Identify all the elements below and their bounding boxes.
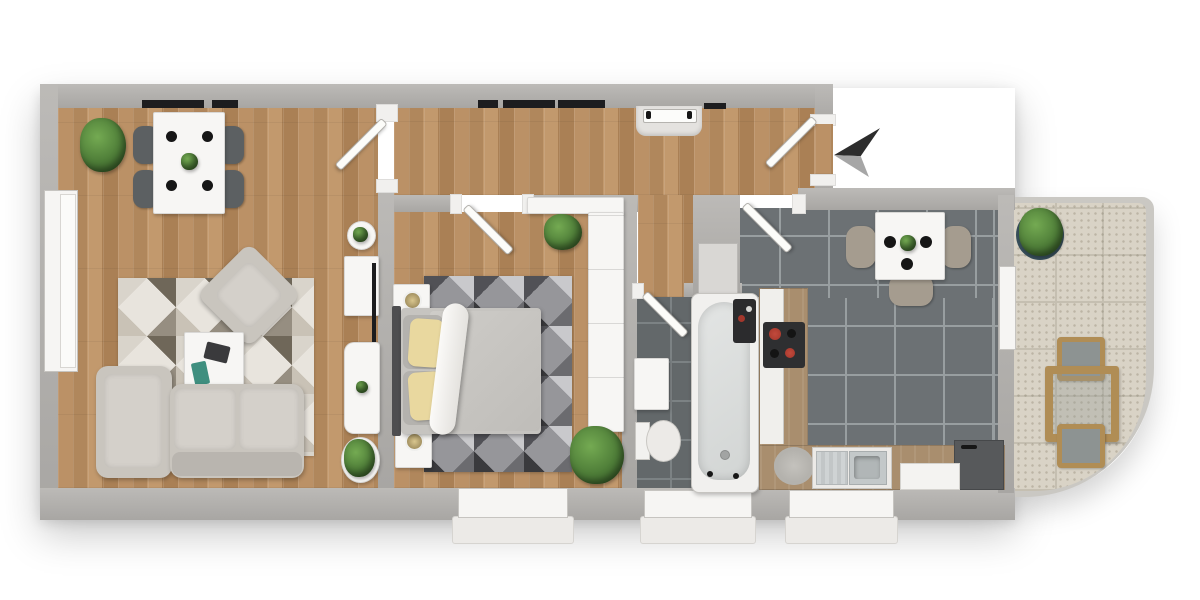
bathroom-south-window [644,490,752,518]
kitchen-window-sill [785,516,898,544]
hallway-closet-front [698,243,738,295]
bathroom-window-sill [640,516,756,544]
bathtub-drain [720,450,730,460]
kitchen-round-rug [774,447,814,485]
balcony-door [999,266,1016,350]
north-arrow-dark-half [834,126,880,178]
plate-2 [202,131,213,142]
kitchen-chair-right [941,226,971,268]
dining-table-plant [181,153,198,170]
sink-drainboard [816,451,848,485]
window-hall-top-a [478,100,498,108]
bedroom-window-sill [452,516,574,544]
kitchen-south-window [789,490,894,518]
bedroom-south-window [458,488,568,518]
kitchen-appliance-dark [954,440,1004,490]
balcony-plant [1019,208,1063,256]
kitchen-appliance-white-front [900,463,960,490]
kitchen-plate-1 [884,236,896,248]
sink-basin-inner [854,456,880,479]
hob-burner-red-2 [785,348,795,358]
kitchen-chair-left [846,226,876,268]
hob-burner-red-1 [769,328,781,340]
kitchen-hob [763,322,805,368]
bathtub-faucet-1 [707,471,713,477]
lounge-chair [344,342,380,434]
bedroom-door-jamb-left [450,194,462,214]
lounge-chair-plant [356,381,368,393]
window-living-top-b [212,100,238,108]
sofa-seat-2 [239,388,299,450]
plate-1 [166,131,177,142]
appliance-controls [961,445,977,449]
bathtub-faucet-2 [733,473,739,479]
wall-bedroom-top-left [394,195,456,212]
armchair-cushion [214,260,285,331]
sofa-chaise [96,366,172,478]
kitchen-table-plant [900,235,916,251]
bedroom-plant-south [570,426,624,484]
caddy-bottle-white [746,306,752,312]
sofa-chaise-cushion [104,374,162,468]
kitchen-plate-2 [920,236,932,248]
outdoor-chair-south [1057,424,1105,468]
hallway-floor [394,106,815,195]
entrance-threshold [815,124,833,174]
toilet-bowl [646,420,681,462]
living-corner-plant [80,118,126,172]
window-living-top-a [142,100,204,108]
sink-basin [849,451,887,485]
niche-door-hinge-left [646,111,651,119]
kitchen-plate-3 [901,258,913,270]
niche-door-hinge-right [687,111,692,119]
sofa-seat-1 [174,388,236,450]
kitchen-door-jamb [792,194,806,214]
wardrobe [588,212,624,432]
plate-3 [166,180,177,191]
living-door-jamb-bottom [376,179,398,193]
living-floor-plant [344,439,375,477]
bathroom-vanity [634,358,669,410]
hob-burner-dark-2 [770,349,779,358]
sofa-backrest [172,452,302,476]
hob-burner-dark-1 [787,329,796,338]
window-hall-top-c [558,100,605,108]
window-left-casement [60,194,76,368]
window-glazing-dashes [704,103,726,109]
side-table-plant [353,227,368,242]
floor-plan-canvas [0,0,1200,600]
north-arrow [834,126,880,178]
caddy-bottle-red [738,315,745,322]
nightstand-south-lamp [405,432,424,451]
bedroom-plant-north [544,214,582,250]
bathroom-caddy [733,299,756,343]
entrance-jamb-bottom [810,174,836,186]
hall-corridor-floor [638,195,695,297]
plate-4 [202,180,213,191]
window-hall-top-b [503,100,555,108]
bed-headboard [392,306,401,436]
wall-tv [372,263,376,351]
wall-kitchen-top [798,188,1015,210]
sofa-main [170,384,304,478]
